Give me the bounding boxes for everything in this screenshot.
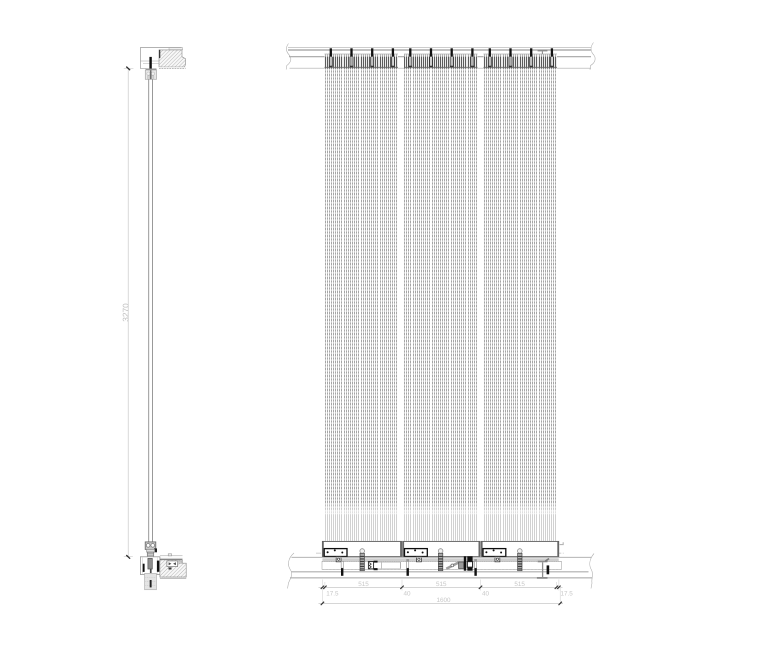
svg-text:515: 515 [436, 581, 447, 588]
svg-text:1600: 1600 [436, 597, 451, 604]
svg-text:515: 515 [514, 581, 525, 588]
svg-text:40: 40 [404, 590, 412, 597]
svg-text:515: 515 [358, 581, 369, 588]
svg-text:17.5: 17.5 [561, 590, 574, 597]
svg-text:17.5: 17.5 [326, 590, 339, 597]
svg-text:3270: 3270 [120, 303, 130, 322]
svg-text:40: 40 [482, 590, 490, 597]
